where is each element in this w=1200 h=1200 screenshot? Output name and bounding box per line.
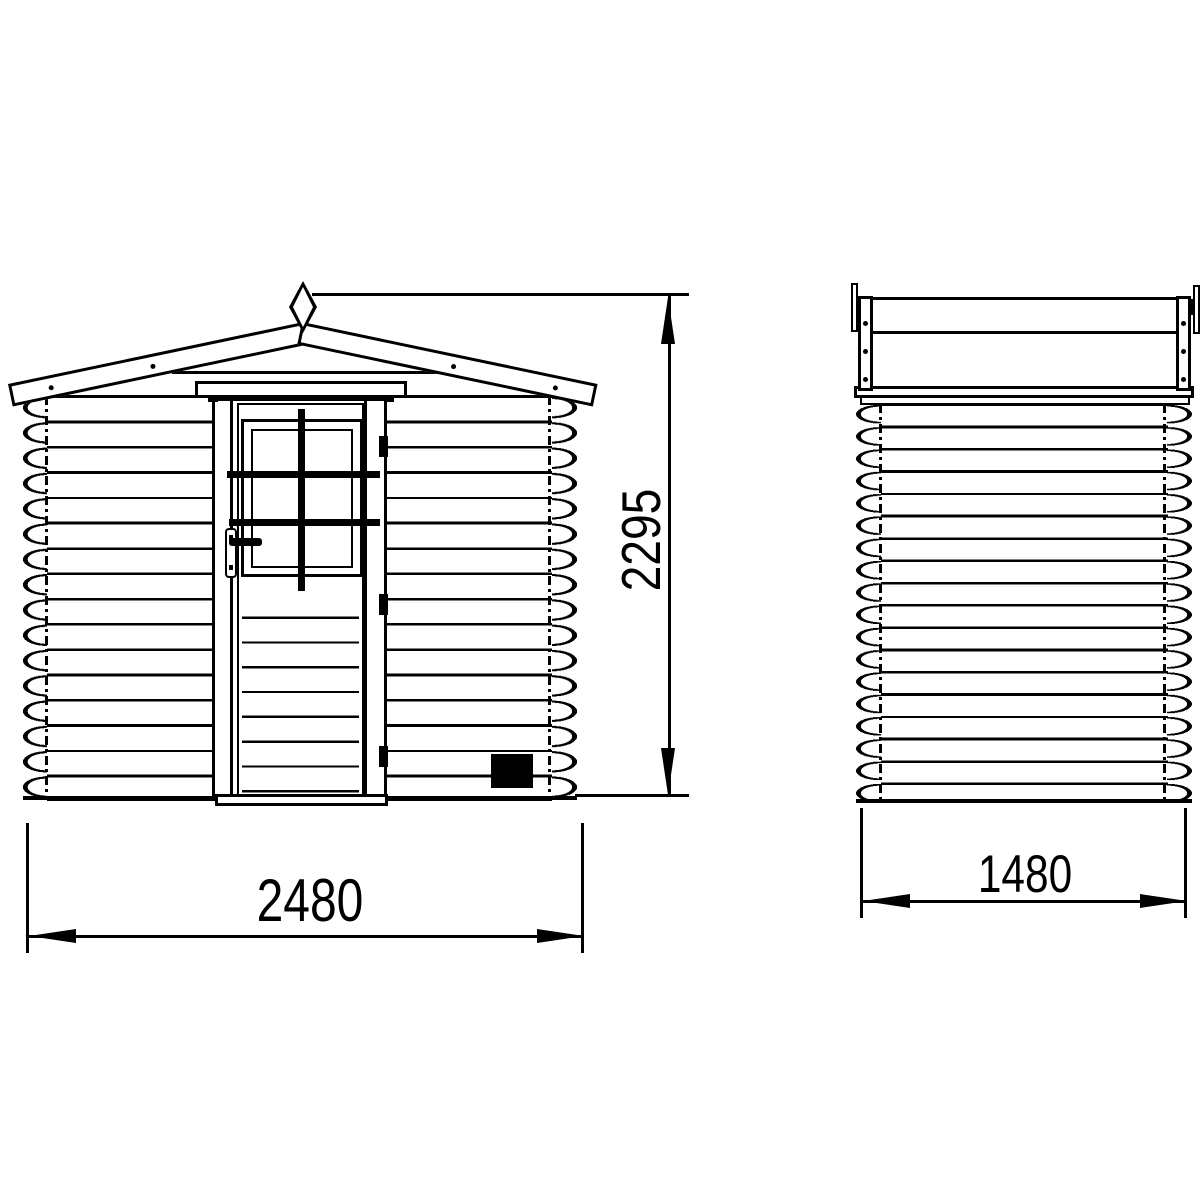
roof-screw bbox=[451, 364, 457, 370]
dimension-line bbox=[29, 935, 582, 938]
front-log-ends-right bbox=[552, 395, 577, 801]
door-header-board bbox=[195, 381, 407, 398]
side-roof-ridge-line bbox=[872, 331, 1177, 334]
arrowhead-right-icon bbox=[1140, 894, 1187, 908]
door-header-bracket-left bbox=[208, 396, 218, 402]
side-corner-joint-right bbox=[1163, 404, 1166, 801]
side-base-line bbox=[856, 799, 1192, 803]
side-bargeboard-tip-right bbox=[1193, 285, 1200, 334]
door-threshold bbox=[215, 794, 388, 806]
side-corner-joint-left bbox=[879, 404, 882, 801]
arrowhead-down-icon bbox=[661, 748, 675, 795]
vent-grille bbox=[491, 754, 533, 788]
front-corner-joint-right bbox=[548, 396, 551, 799]
roof-screw bbox=[1181, 349, 1186, 354]
roof-screw bbox=[48, 385, 54, 391]
arrowhead-right-icon bbox=[537, 929, 584, 943]
side-log-ends-left bbox=[856, 403, 881, 804]
door-handle-lever[interactable] bbox=[229, 538, 262, 546]
arrowhead-up-icon bbox=[661, 297, 675, 344]
side-wall bbox=[881, 403, 1168, 803]
side-bargeboard-tip-left bbox=[851, 283, 858, 332]
extension-line bbox=[312, 293, 689, 296]
front-corner-joint-left bbox=[45, 396, 48, 799]
door-lower-planks bbox=[242, 594, 359, 794]
door-jamb-line-right bbox=[364, 400, 367, 796]
roof-screw bbox=[552, 385, 558, 391]
window-muntin-horizontal-upper bbox=[227, 471, 380, 478]
roof-screw bbox=[863, 349, 868, 354]
side-bargeboard-right bbox=[1176, 296, 1191, 391]
door-header-bracket-right bbox=[384, 396, 394, 402]
arrowhead-left-icon bbox=[29, 929, 76, 943]
window-muntin-vertical bbox=[298, 409, 305, 591]
roof-screw bbox=[863, 321, 868, 326]
side-depth-label: 1480 bbox=[945, 847, 1105, 902]
roof-screw bbox=[150, 363, 156, 369]
front-log-ends-left bbox=[23, 395, 47, 801]
roof-finial-face bbox=[293, 287, 313, 327]
door-handle-screw bbox=[229, 565, 233, 570]
roof-screw bbox=[1181, 321, 1186, 326]
front-width-label: 2480 bbox=[230, 871, 390, 931]
door-hinge-bottom bbox=[379, 746, 388, 767]
shed-elevation-drawing: 2480 2295 1480 bbox=[0, 0, 1200, 1200]
roof-screw bbox=[863, 377, 868, 382]
window-muntin-horizontal-lower bbox=[229, 519, 380, 526]
side-bargeboard-left bbox=[858, 296, 873, 391]
roof-screw bbox=[1181, 377, 1186, 382]
side-log-ends-right bbox=[1167, 403, 1192, 804]
arrowhead-left-icon bbox=[863, 894, 910, 908]
door-hinge-middle bbox=[379, 594, 388, 615]
front-height-label: 2295 bbox=[591, 456, 691, 624]
door-hinge-top bbox=[379, 436, 388, 457]
door-jamb-line-left bbox=[230, 400, 233, 796]
side-roof-panel bbox=[872, 297, 1177, 390]
